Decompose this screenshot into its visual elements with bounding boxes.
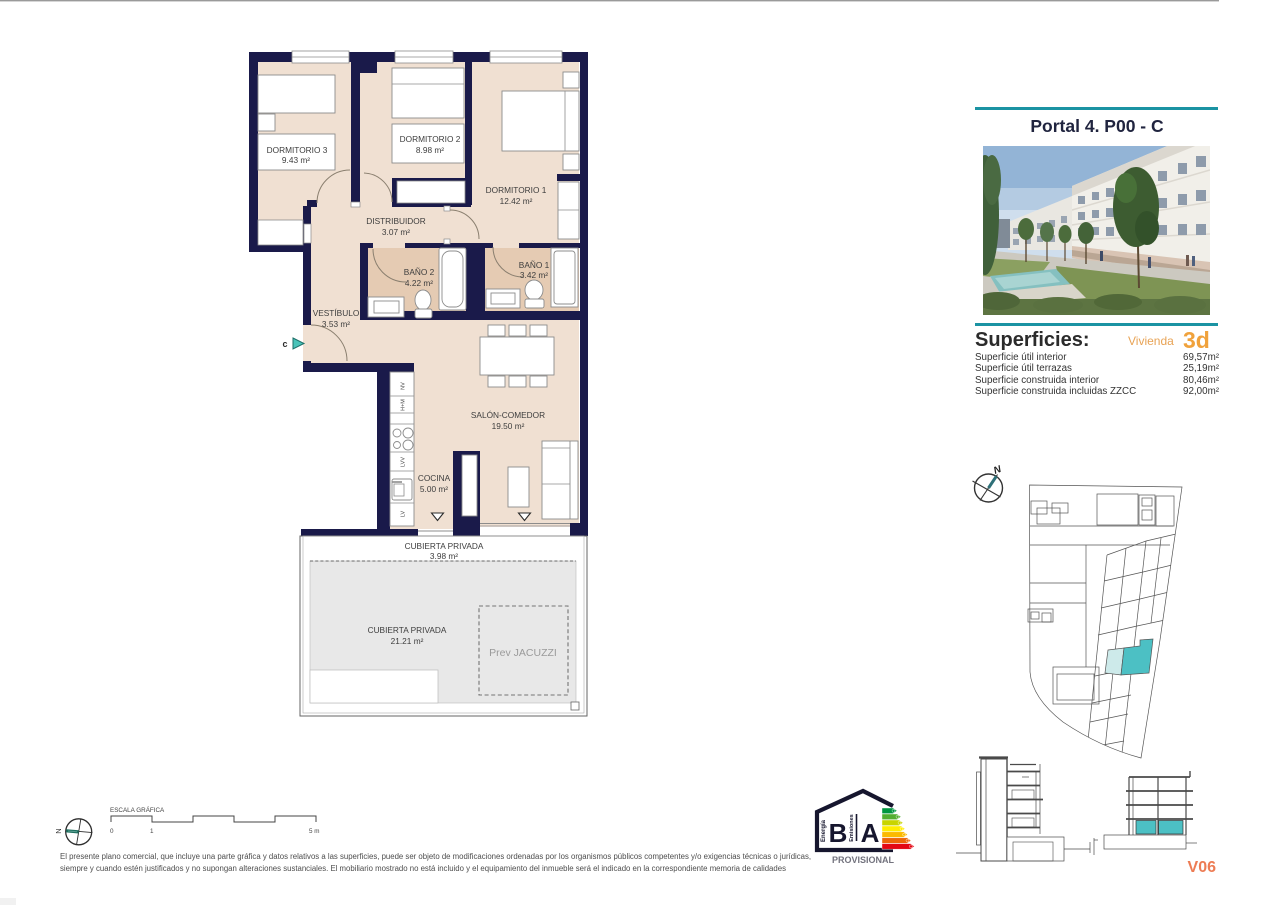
svg-text:3.98 m²: 3.98 m² (430, 551, 458, 561)
svg-text:Emisiones: Emisiones (849, 814, 855, 842)
svg-text:BAÑO 2: BAÑO 2 (404, 267, 435, 277)
svg-text:c: c (282, 339, 287, 349)
svg-text:3d: 3d (1183, 327, 1210, 353)
svg-text:SALÓN-COMEDOR: SALÓN-COMEDOR (471, 410, 545, 420)
svg-text:12.42 m²: 12.42 m² (500, 196, 533, 206)
svg-text:Prev JACUZZI: Prev JACUZZI (489, 647, 557, 659)
svg-text:69,57m²: 69,57m² (1183, 352, 1220, 363)
svg-text:N: N (54, 828, 63, 833)
svg-text:3.42 m²: 3.42 m² (520, 270, 548, 280)
svg-text:V06: V06 (1188, 859, 1217, 876)
svg-text:3.53 m²: 3.53 m² (322, 319, 350, 329)
svg-text:80,46m²: 80,46m² (1183, 375, 1220, 386)
svg-text:Portal 4. P00 - C: Portal 4. P00 - C (1030, 116, 1164, 136)
svg-text:DORMITORIO 3: DORMITORIO 3 (267, 145, 328, 155)
svg-text:Superficies:: Superficies: (975, 329, 1089, 351)
svg-text:Superficie útil interior: Superficie útil interior (975, 352, 1067, 363)
svg-text:1: 1 (150, 828, 154, 835)
svg-text:El presente plano comercial,: El presente plano comercial, que incluye… (60, 852, 811, 861)
svg-text:DORMITORIO 2: DORMITORIO 2 (400, 134, 461, 144)
svg-text:VESTÍBULO: VESTÍBULO (313, 308, 360, 318)
svg-text:B: B (829, 818, 848, 848)
svg-text:4.22 m²: 4.22 m² (405, 278, 433, 288)
svg-text:COCINA: COCINA (418, 473, 451, 483)
svg-text:DORMITORIO 1: DORMITORIO 1 (486, 185, 547, 195)
svg-text:CUBIERTA PRIVADA: CUBIERTA PRIVADA (405, 541, 484, 551)
svg-text:8.98 m²: 8.98 m² (416, 145, 444, 155)
svg-text:Superficie construida interior: Superficie construida interior (975, 375, 1100, 386)
svg-text:0: 0 (110, 828, 114, 835)
svg-text:19.50 m²: 19.50 m² (492, 421, 525, 431)
svg-text:Superficie construida incluida: Superficie construida incluidas ZZCC (975, 386, 1136, 397)
svg-text:LVV: LVV (400, 457, 406, 467)
svg-text:DISTRIBUIDOR: DISTRIBUIDOR (366, 216, 425, 226)
svg-text:PROVISIONAL: PROVISIONAL (832, 855, 895, 865)
svg-text:NV: NV (400, 382, 406, 390)
svg-text:5.00 m²: 5.00 m² (420, 484, 448, 494)
svg-text:siempre y cuando estén justifi: siempre y cuando estén justificados y no… (60, 864, 786, 873)
svg-text:Energía: Energía (821, 819, 827, 842)
svg-text:21.21 m²: 21.21 m² (391, 636, 424, 646)
svg-text:BAÑO 1: BAÑO 1 (519, 260, 550, 270)
svg-text:Superficie útil terrazas: Superficie útil terrazas (975, 363, 1072, 374)
svg-text:CUBIERTA PRIVADA: CUBIERTA PRIVADA (368, 625, 447, 635)
svg-text:LV: LV (400, 511, 406, 518)
svg-text:H+M: H+M (400, 399, 406, 411)
svg-text:3.07 m²: 3.07 m² (382, 227, 410, 237)
svg-text:Vivienda: Vivienda (1128, 334, 1174, 348)
svg-text:5 m: 5 m (309, 828, 320, 835)
svg-text:A: A (861, 818, 880, 848)
svg-text:ESCALA GRÁFICA: ESCALA GRÁFICA (110, 805, 165, 814)
svg-text:92,00m²: 92,00m² (1183, 386, 1220, 397)
svg-text:25,19m²: 25,19m² (1183, 363, 1220, 374)
svg-text:9.43 m²: 9.43 m² (282, 155, 310, 165)
